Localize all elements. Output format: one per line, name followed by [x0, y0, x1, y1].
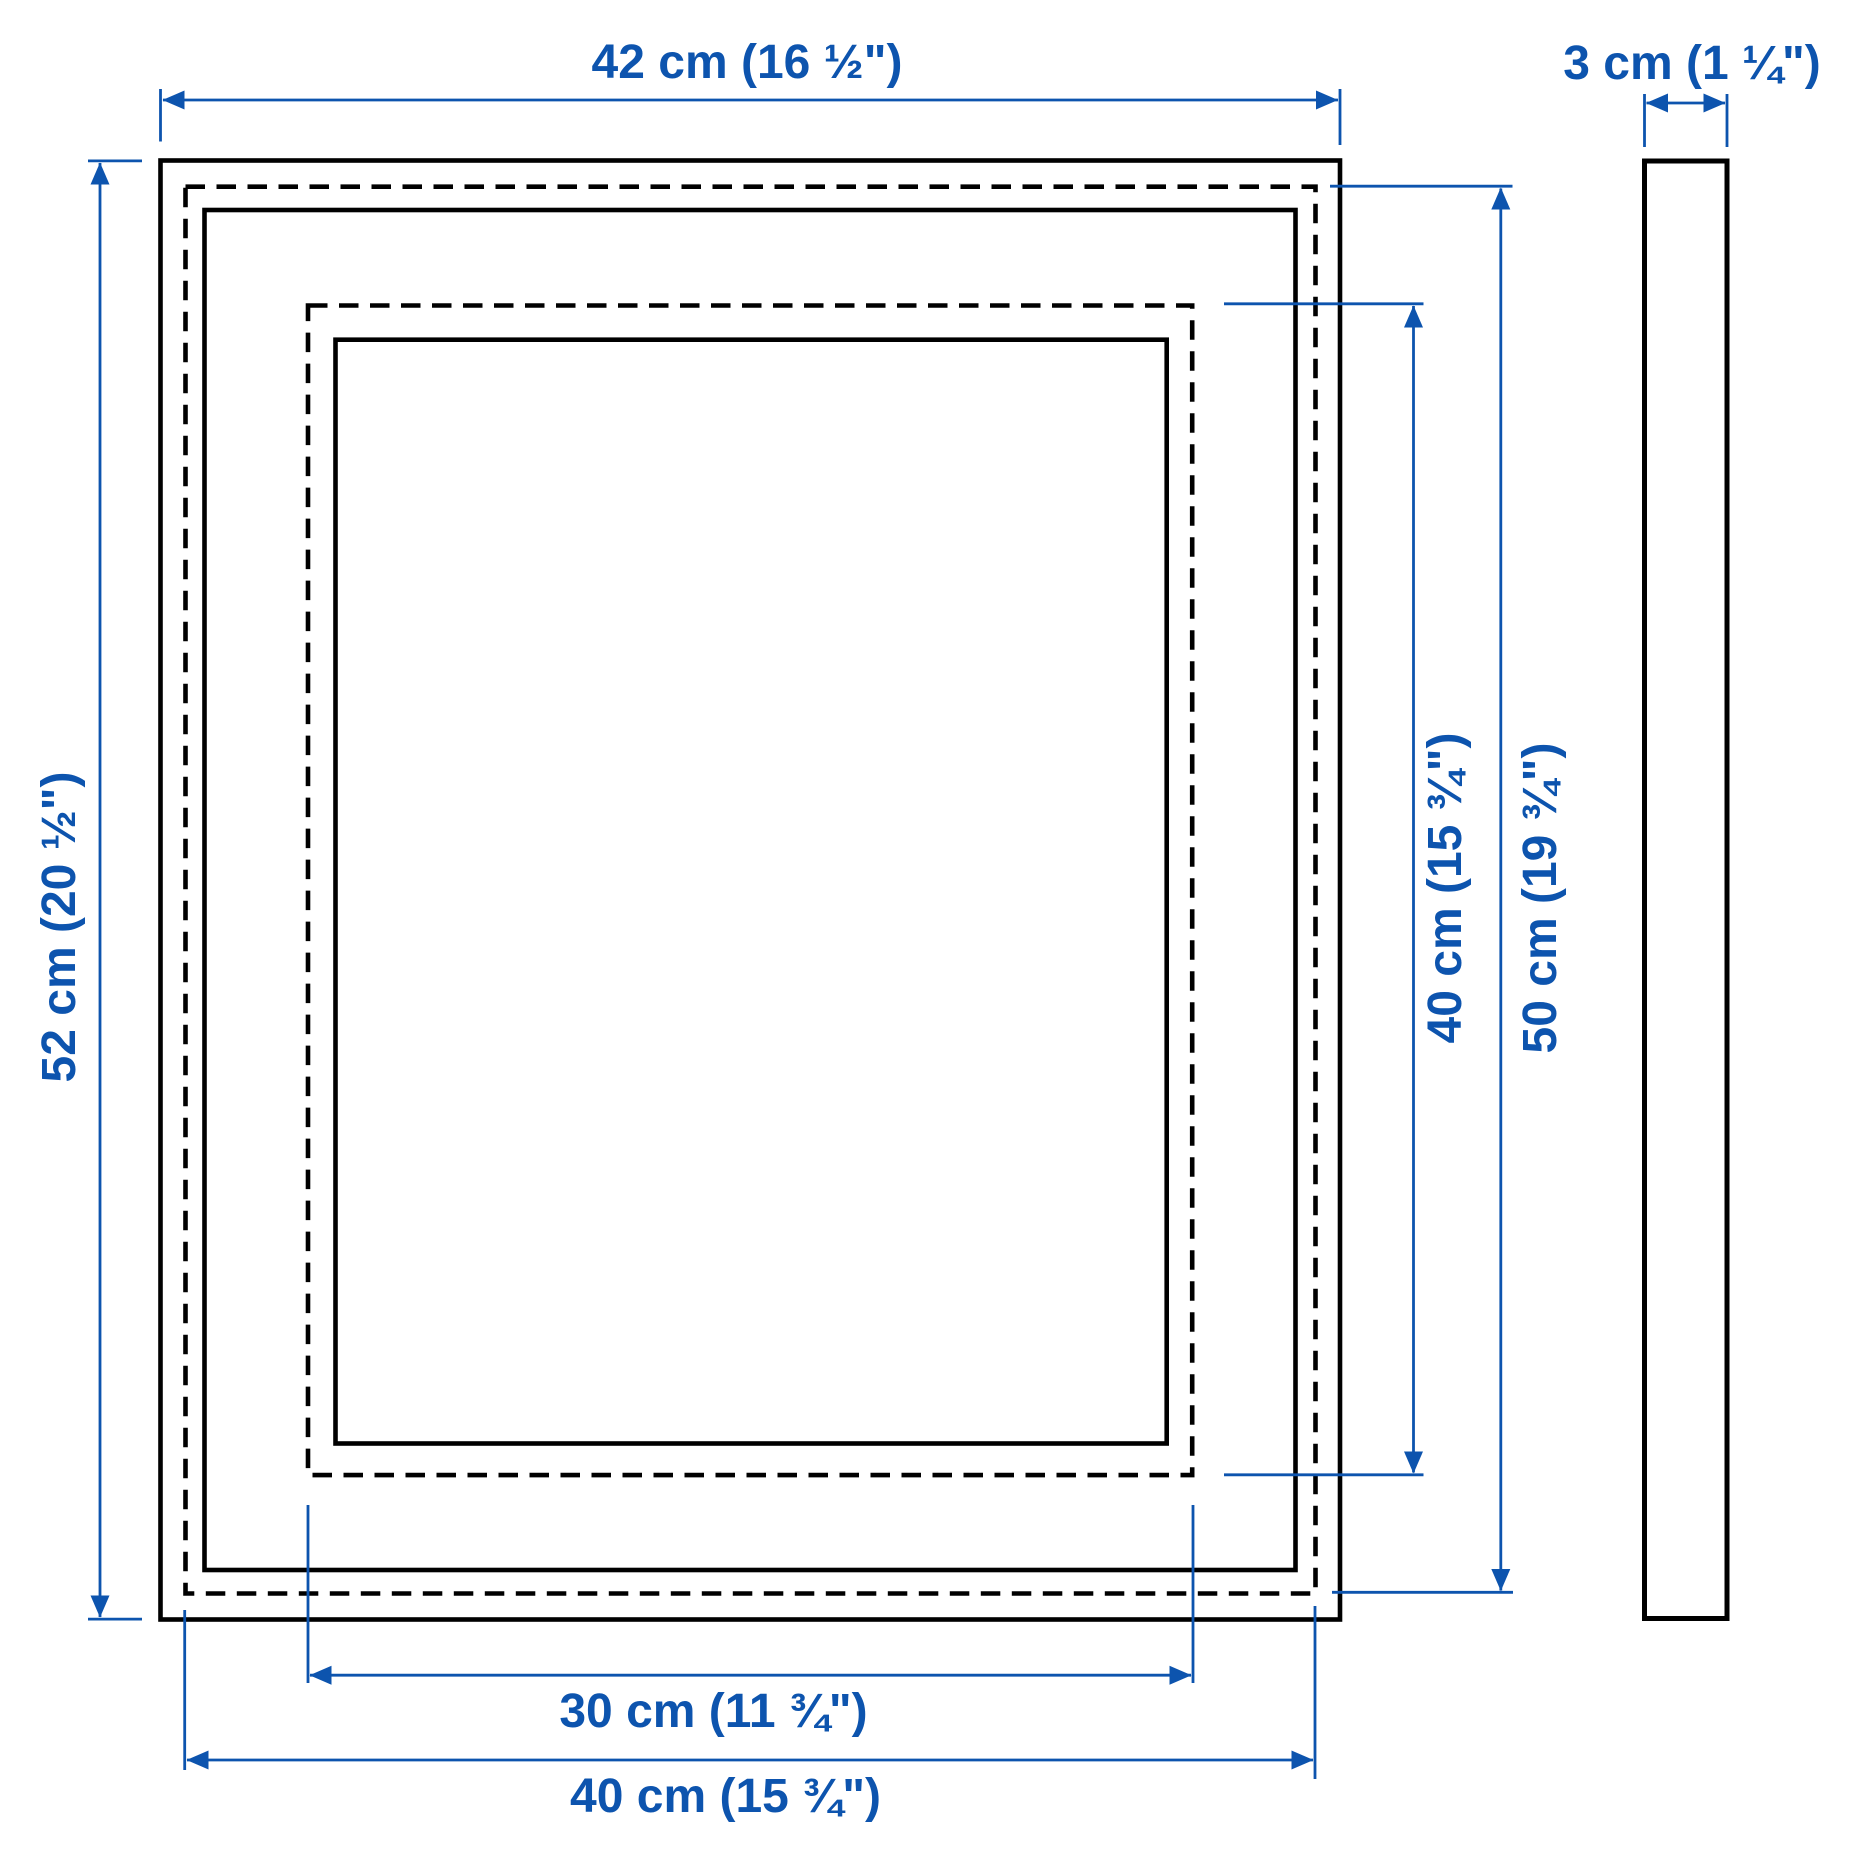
- svg-text:42 cm (16 ½"): 42 cm (16 ½"): [592, 36, 903, 89]
- svg-text:3 cm (1 ¼"): 3 cm (1 ¼"): [1563, 37, 1821, 90]
- svg-text:40 cm (15 ¾"): 40 cm (15 ¾"): [1419, 733, 1472, 1044]
- svg-text:50 cm (19 ¾"): 50 cm (19 ¾"): [1514, 743, 1567, 1054]
- svg-text:30 cm (11 ¾"): 30 cm (11 ¾"): [559, 1685, 867, 1738]
- svg-text:52 cm (20 ½"): 52 cm (20 ½"): [33, 772, 86, 1083]
- svg-text:40 cm (15 ¾"): 40 cm (15 ¾"): [570, 1770, 881, 1823]
